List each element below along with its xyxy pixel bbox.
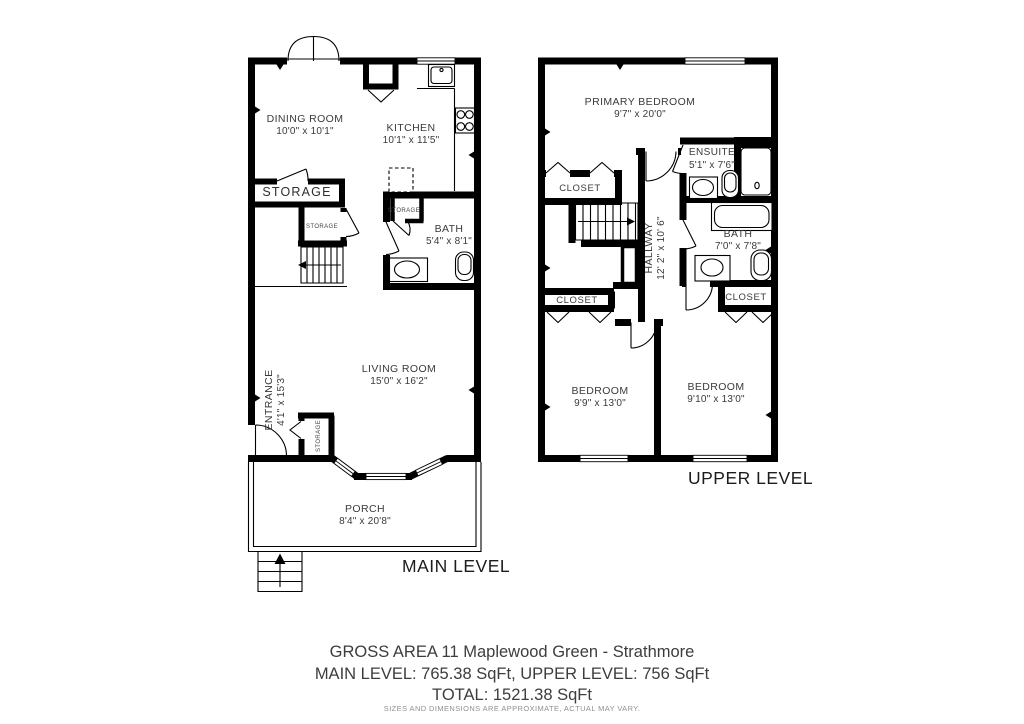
stove — [456, 108, 475, 133]
shower-header-wall — [734, 137, 778, 148]
room-label-hallway: HALLWAY 12' 2" x 10' 6" — [643, 216, 669, 279]
shower — [741, 148, 771, 195]
kitchen-sink — [429, 65, 455, 87]
room-label-kitchen: KITCHEN 10'1" x 11'5" — [383, 122, 440, 148]
room-label-bath-upper: BATH 7'0" x 7'8" — [715, 228, 761, 254]
room-label-bedroom-left: BEDROOM 9'9" x 13'0" — [571, 385, 628, 411]
floorplan-drawing — [0, 0, 1024, 724]
ensuite-vanity — [690, 177, 718, 199]
entry-closet-bifold-chevron — [290, 422, 301, 439]
under-stairs-storage-door — [346, 209, 359, 237]
closet-left-bifold-chevrons — [547, 312, 611, 323]
room-label-dining: DINING ROOM 10'0" x 10'1" — [267, 113, 344, 139]
room-label-storage-bath: STORAGE — [388, 198, 420, 218]
footer-level-areas: MAIN LEVEL: 765.38 SqFt, UPPER LEVEL: 75… — [0, 665, 1024, 684]
room-label-living: LIVING ROOM 15'0" x 16'2" — [362, 363, 436, 389]
footer-disclaimer: SIZES AND DIMENSIONS ARE APPROXIMATE, AC… — [0, 704, 1024, 713]
bath-door — [386, 222, 399, 255]
storage-room-door — [277, 169, 308, 181]
upper-bath-vanity — [695, 256, 730, 282]
pantry-bifold-chevron — [368, 90, 394, 102]
kitchen-window — [417, 58, 455, 64]
upper-level-label: UPPER LEVEL — [688, 468, 813, 489]
stairs-up-arrowhead — [627, 218, 635, 226]
under-stair-void — [623, 247, 637, 284]
bedroom-left-door — [631, 323, 657, 349]
floorplan-page: DINING ROOM 10'0" x 10'1" KITCHEN 10'1" … — [0, 0, 1024, 724]
bedroom-right-window — [693, 455, 747, 461]
room-label-storage-entry: STORAGE — [306, 420, 326, 452]
closet-right-bifold-chevrons — [725, 312, 774, 323]
room-label-porch: PORCH 8'4" x 20'8" — [339, 503, 391, 529]
upper-bath-toilet — [751, 250, 772, 281]
main-level-label: MAIN LEVEL — [402, 556, 510, 577]
bedroom-right-door — [686, 284, 713, 311]
french-door-right — [314, 37, 340, 62]
stairs-down-arrowhead — [298, 261, 306, 269]
bay-window-left — [334, 458, 355, 476]
room-label-entrance: ENTRANCE 4'1" x 15'3" — [263, 370, 289, 431]
room-label-closet-left: CLOSET — [556, 289, 598, 309]
room-label-storage-under-stairs: STORAGE — [306, 214, 338, 234]
ensuite-door — [673, 145, 684, 174]
room-label-bath-main: BATH 5'4" x 8'1" — [426, 223, 472, 249]
room-label-closet-right: CLOSET — [725, 286, 767, 306]
main-bath-toilet — [456, 252, 474, 281]
primary-bedroom-window — [685, 58, 745, 64]
bay-window-right — [415, 459, 442, 476]
bay-window-center — [366, 473, 406, 479]
room-label-primary-bedroom: PRIMARY BEDROOM 9'7" x 20'0" — [585, 96, 696, 122]
footer-gross-area: GROSS AREA 11 Maplewood Green - Strathmo… — [0, 643, 1024, 662]
room-label-ensuite: ENSUITE 5'1" x 7'6" — [689, 147, 735, 173]
french-door-left — [288, 37, 314, 62]
dishwasher-dashed — [389, 168, 413, 192]
primary-bedroom-door — [646, 152, 676, 182]
room-label-closet-primary: CLOSET — [559, 177, 601, 197]
footer-total-area: TOTAL: 1521.38 SqFt — [0, 686, 1024, 705]
room-label-storage: STORAGE — [262, 182, 331, 202]
ensuite-toilet — [722, 171, 739, 198]
bedroom-left-window — [580, 455, 628, 461]
bathtub — [712, 203, 773, 231]
room-label-bedroom-right: BEDROOM 9'10" x 13'0" — [687, 381, 744, 407]
main-bath-vanity — [390, 258, 428, 282]
upper-bath-door — [683, 220, 696, 249]
steps-up-arrowhead — [275, 554, 286, 565]
